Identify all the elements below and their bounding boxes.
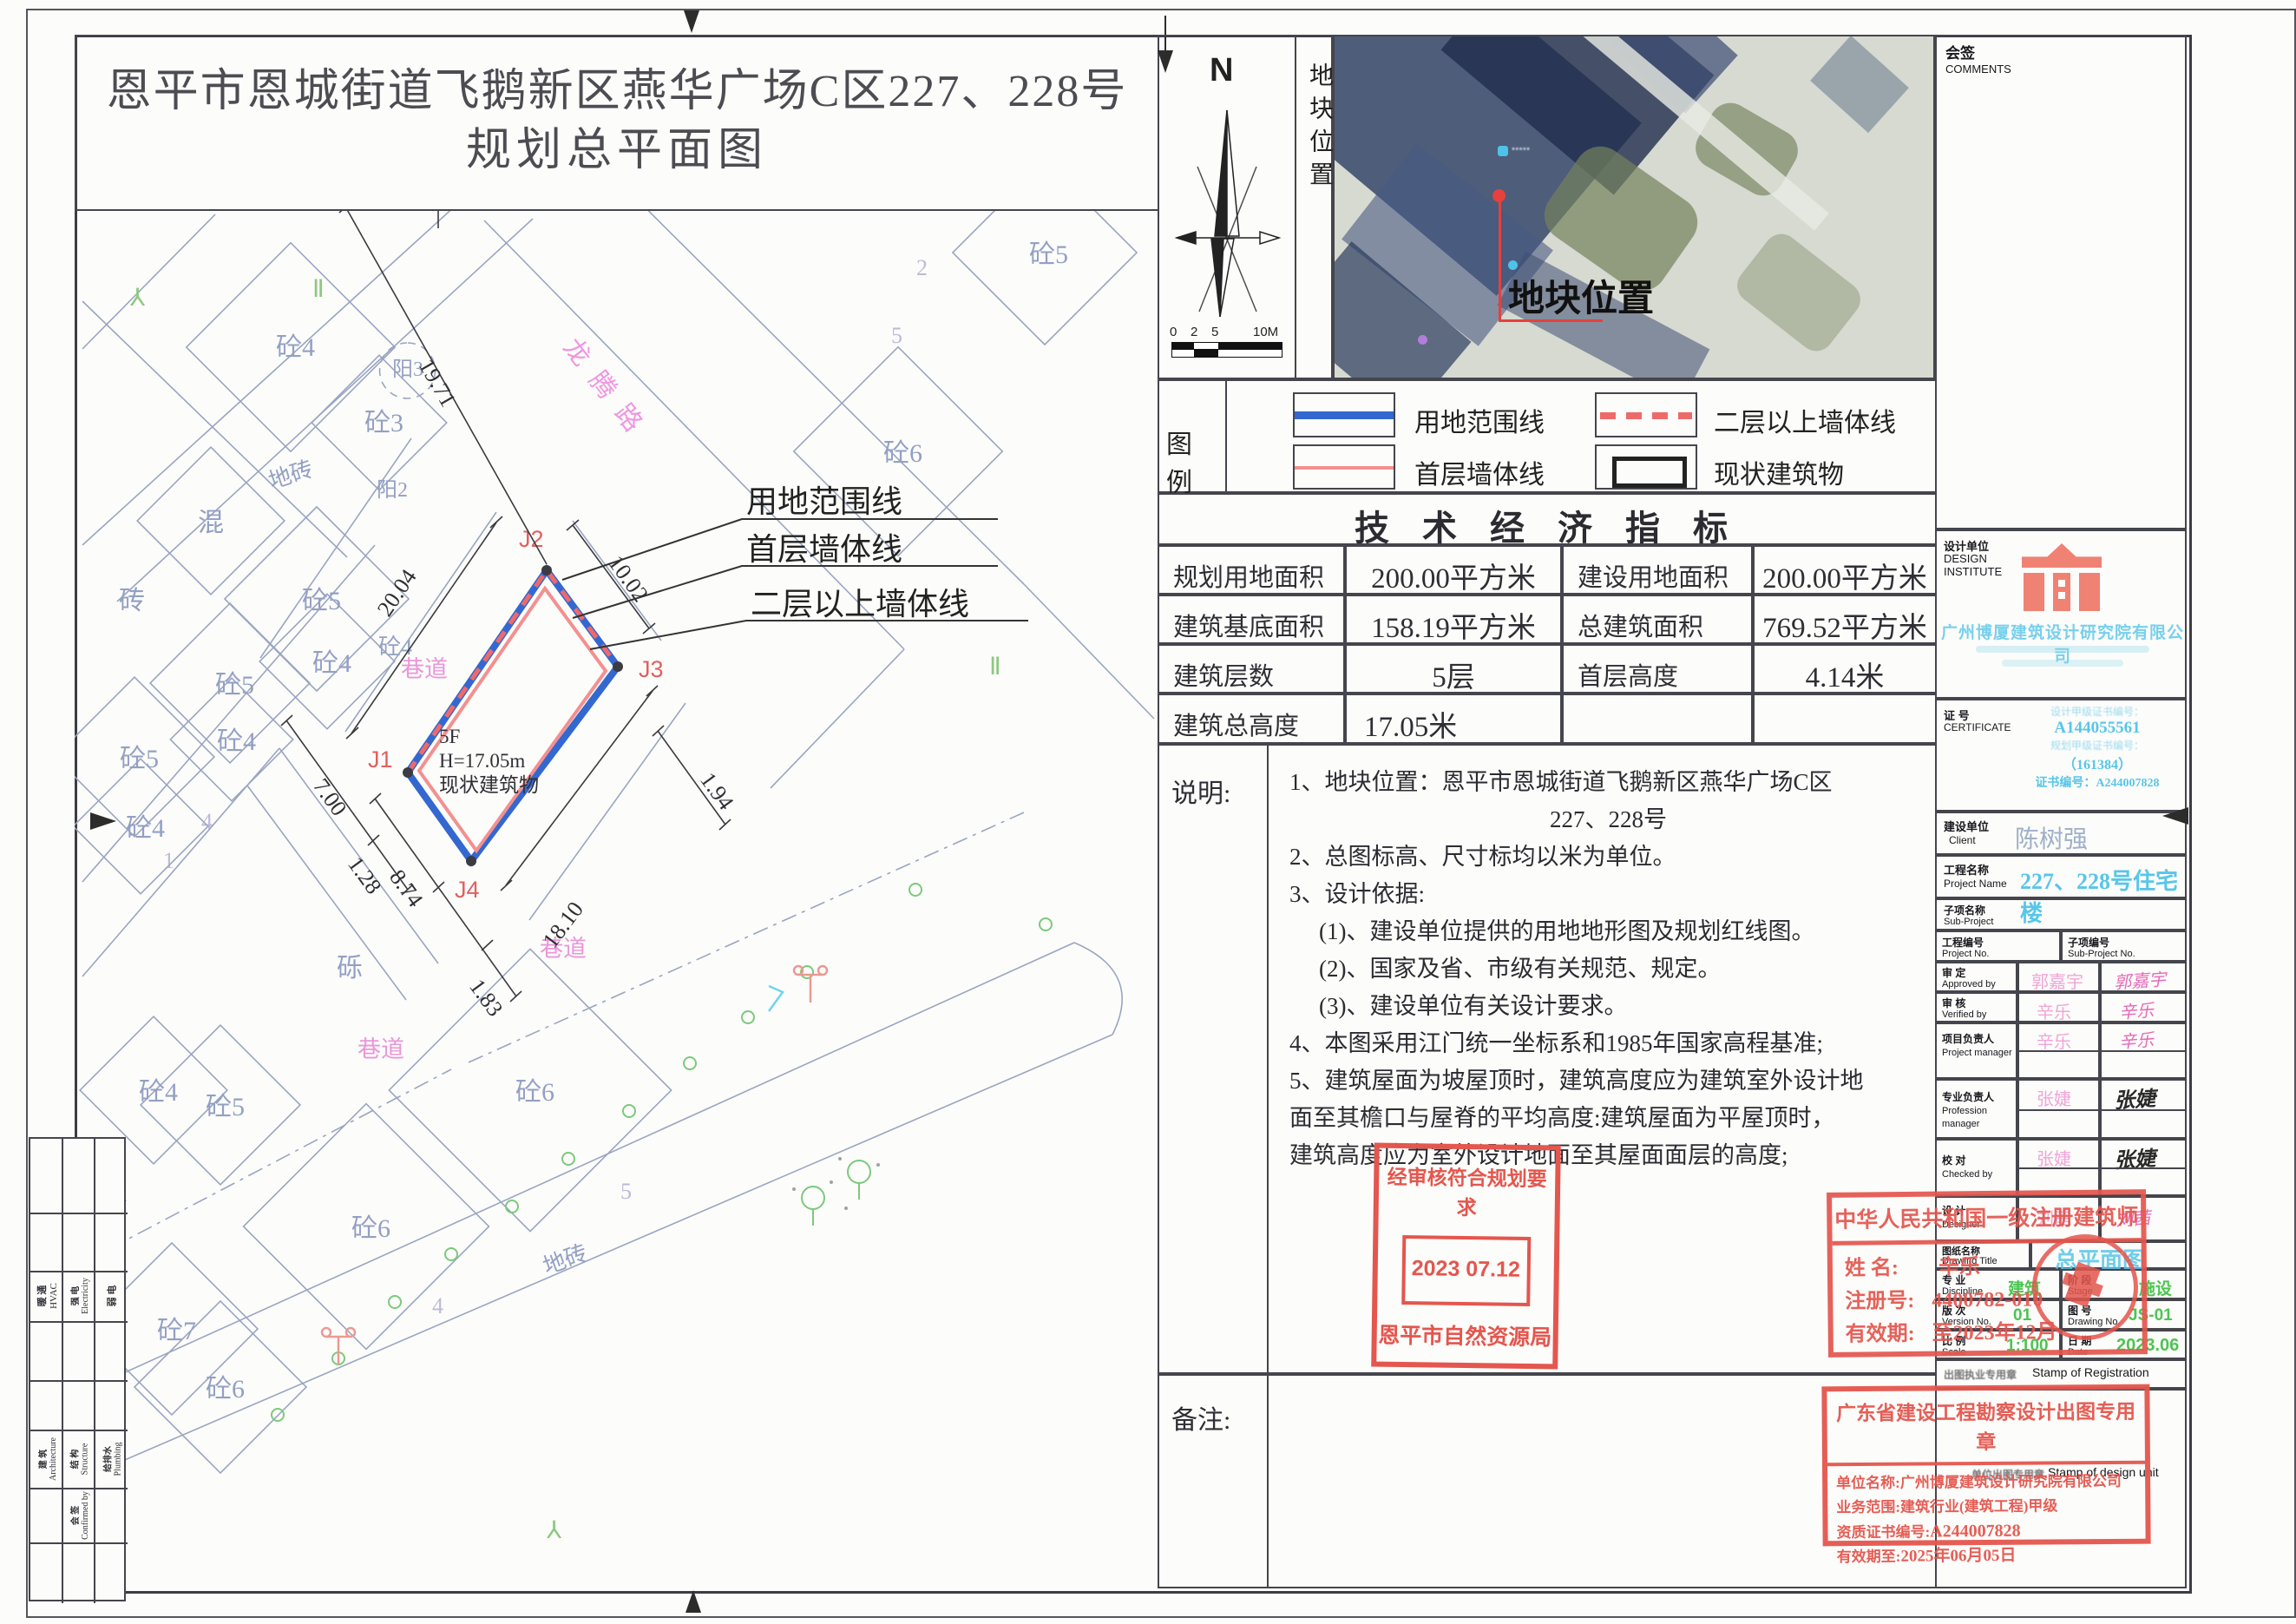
ind-cell	[1753, 694, 1937, 744]
dim-text: 1.28	[343, 851, 386, 898]
divider	[2017, 1050, 2187, 1052]
dim-text: 1.83	[464, 974, 508, 1021]
legend-swatch-upper-wall	[1595, 392, 1697, 437]
signoff-architecture: 建 筑Architecture	[30, 1430, 62, 1488]
building-status: 现状建筑物	[439, 774, 539, 796]
ind-cell: 158.19平方米	[1345, 595, 1562, 644]
architect-name-label: 姓 名:	[1845, 1257, 1899, 1280]
design-institute-cell: 设计单位 DESIGN INSTITUTE 广州博厦建筑设计研究院有限公司	[1935, 529, 2187, 699]
survey-mark: Ⅱ	[312, 276, 325, 303]
approved-by-label: 审 定 Approved by	[1935, 962, 2017, 992]
unit-stamp-value: A244007828	[1930, 1522, 2021, 1542]
certificate-en: CERTIFICATE	[1944, 721, 2011, 734]
architect-reg-label: 注册号:	[1845, 1290, 1914, 1313]
parcel-label: 砼4	[126, 814, 165, 843]
client-zh: 建设单位	[1944, 819, 1989, 835]
parcel-label: 砼7	[157, 1317, 196, 1345]
parcel-label: 砼5	[215, 671, 254, 700]
dim-text: 20.04	[372, 565, 422, 621]
institute-subline	[1976, 646, 2149, 653]
note-line: 1、地块位置：恩平市恩城街道飞鹅新区燕华广场C区	[1289, 764, 1932, 801]
institute-subline	[2002, 660, 2123, 667]
ind-cell: 首层高度	[1562, 644, 1753, 694]
ind-cell: 建筑基底面积	[1158, 595, 1345, 644]
ind-cell: 建筑总高度	[1158, 694, 1345, 744]
corner-point-label: J1	[368, 746, 393, 773]
subproject-no-en: Sub-Project No.	[2068, 948, 2135, 961]
drawing-main-title-line1: 恩平市恩城街道飞鹅新区燕华广场C区227、228号	[75, 54, 1159, 119]
scale-bar: 0 2 5 10M	[1170, 325, 1286, 365]
parcel-label: 砼4	[276, 333, 315, 362]
divider	[2017, 1167, 2187, 1169]
ind-cell: 769.52平方米	[1753, 595, 1937, 644]
signoff-weak-electricity: 弱 电	[95, 1271, 128, 1321]
ind-cell: 建筑层数	[1158, 644, 1345, 694]
certificate-cell: 证 号 CERTIFICATE 设计甲级证书编号： A144055561 规划甲…	[1935, 699, 2187, 812]
photo-vegetation-blob	[1730, 227, 1867, 358]
subproject-no-cell: 子项编号 Sub-Project No.	[2061, 930, 2187, 962]
remarks-label-cell: 备注:	[1158, 1374, 1269, 1588]
project-en: Project Name	[1944, 878, 2007, 891]
ind-cell: 17.05米	[1345, 694, 1562, 744]
architect-valid-label: 有效期:	[1846, 1323, 1915, 1346]
trees	[272, 884, 1052, 1421]
drawing-sheet: 恩平市恩城街道飞鹅新区燕华广场C区227、228号 规划总平面图	[0, 0, 2296, 1624]
location-side-cell: 地块位置	[1295, 35, 1333, 379]
signoff-confirmed-by: 会 签Confirmed by	[30, 1488, 128, 1542]
architect-name: 辛乐	[1938, 1256, 1980, 1279]
signoff-structure: 结 构Structure	[62, 1430, 95, 1488]
notes-label: 说明:	[1171, 772, 1230, 810]
ind-cell: 200.00平方米	[1345, 545, 1562, 595]
unit-stamp-label: 单位名称:	[1836, 1475, 1900, 1492]
notes-label-cell: 说明:	[1158, 744, 1269, 1374]
note-line: 5、建筑屋面为坡屋顶时，建筑高度应为建筑室外设计地	[1289, 1062, 1932, 1100]
unit-stamp-title: 广东省建设工程勘察设计出图专用章	[1827, 1395, 2145, 1467]
road-labels: 巷道 巷道 巷道 龙腾路	[358, 333, 657, 1062]
architect-valid: 至2023年12月	[1932, 1321, 2057, 1345]
unit-stamp-label: 有效期至:	[1837, 1548, 1901, 1566]
unit-stamp-value: 广州博厦建筑设计研究院有限公司	[1900, 1473, 2122, 1491]
profession-manager-label: 专业负责人 Profession manager	[1935, 1079, 2017, 1139]
project-name-cell: 工程名称 Project Name 227、228号住宅楼	[1935, 855, 2187, 898]
cert-line: 证书编号：A244007828	[2011, 773, 2184, 791]
note-line: 面至其檐口与屋脊的平均高度:建筑屋面为平屋顶时，	[1289, 1100, 1932, 1137]
dim-text: 10.02	[603, 550, 653, 606]
parcel-label: 砼6	[883, 439, 922, 468]
note-line: 227、228号	[1289, 801, 1932, 838]
legend-item-label: 首层墙体线	[1414, 453, 1545, 491]
unit-stamp-label: 资质证书编号:	[1836, 1523, 1930, 1541]
cert-line: （161384）	[2011, 753, 2184, 773]
legend-swatch-existing-building	[1595, 444, 1697, 490]
signoff-strip: 暖 通HVAC 强 电Electricity 弱 电 建 筑Architectu…	[29, 1137, 126, 1601]
indicators-title: 技 术 经 济 指 标	[1159, 500, 1935, 550]
legend-label-cell: 图 例	[1158, 379, 1227, 493]
lane-label: 巷道	[358, 1036, 404, 1062]
parcel-label: 砼5	[1029, 240, 1068, 269]
parcel-label: 地砖	[540, 1240, 591, 1279]
parcel-label: 阳2	[377, 479, 408, 502]
design-institute-en: DESIGN INSTITUTE	[1944, 552, 2004, 578]
dim-text: 8.74	[384, 865, 428, 911]
comments-cell: 会签 COMMENTS	[1935, 35, 2187, 529]
indicators-title-band: 技 术 经 济 指 标	[1158, 493, 1937, 545]
grass-symbol: ⅄	[546, 1517, 562, 1544]
remarks-label: 备注:	[1171, 1398, 1230, 1437]
parcel-label: 砼5	[206, 1093, 245, 1121]
verified-by-name: 辛乐	[2017, 992, 2100, 1022]
parcel-label: 砼4	[312, 649, 351, 678]
location-side-label: 地块位置	[1302, 62, 1336, 194]
ind-cell	[1562, 694, 1753, 744]
north-compass-icon	[1159, 84, 1295, 336]
grass-symbol: ⅄	[129, 285, 146, 312]
callout-upper-wall: 二层以上墙体线	[751, 587, 969, 621]
parcel-label: 混	[198, 509, 224, 537]
planning-stamp-date: 2023 07.12	[1412, 1256, 1521, 1282]
subproject-en: Sub-Project	[1944, 916, 1993, 929]
parcel-label: 5	[891, 323, 902, 348]
road-name-longtenglu: 龙腾路	[557, 333, 657, 450]
architect-reg-no: 4400782-010	[1932, 1288, 2043, 1312]
legend-item-label: 二层以上墙体线	[1714, 401, 1896, 439]
building-height: H=17.05m	[439, 750, 525, 772]
legend-swatch-ground-wall	[1293, 444, 1395, 490]
unit-stamp-label: 业务范围:	[1836, 1499, 1900, 1516]
note-line: 3、设计依据:	[1289, 876, 1932, 913]
callout-ground-wall: 首层墙体线	[746, 532, 902, 567]
comments-en: COMMENTS	[1945, 62, 2011, 76]
verified-by-signature: 辛乐	[2100, 992, 2187, 1022]
utility-poles	[322, 966, 827, 1364]
center-mark-left	[90, 812, 116, 830]
parcel-label: 砼5	[302, 587, 341, 615]
cert-line: A144055561	[2011, 719, 2184, 738]
callout-site-boundary: 用地范围线	[746, 484, 902, 519]
photo-pin-cyan	[1508, 260, 1518, 270]
scale-tick: 2	[1191, 325, 1197, 339]
scale-tick: 0	[1170, 325, 1177, 339]
dim-text: 1.94	[695, 767, 738, 814]
corner-point-label: J3	[639, 656, 664, 682]
signoff-plumbing: 给排水Plumbing	[95, 1430, 128, 1488]
project-no-cell: 工程编号 Project No.	[1935, 930, 2061, 962]
planning-stamp-datebox: 2023 07.12	[1401, 1235, 1531, 1306]
legend-item-label: 现状建筑物	[1714, 453, 1844, 491]
unit-stamp-value: 2025年06月05日	[1900, 1547, 2016, 1566]
planning-stamp-line1: 经审核符合规划要求	[1379, 1160, 1556, 1222]
corner-point-label: J2	[519, 526, 544, 552]
ind-cell: 4.14米	[1753, 644, 1937, 694]
parcel-label: 5	[620, 1179, 632, 1204]
drawing-main-title-line2: 规划总平面图	[75, 113, 1159, 178]
photo-building-blob	[1810, 36, 1909, 133]
planning-approval-stamp: 经审核符合规划要求 2023 07.12 恩平市自然资源局	[1371, 1143, 1561, 1370]
client-cell: 建设单位 Client 陈树强	[1935, 812, 2187, 855]
remarks-row	[1158, 1374, 1937, 1588]
legend-item-label: 用地范围线	[1414, 401, 1545, 439]
dim-text: 7.00	[308, 773, 351, 820]
ind-cell: 总建筑面积	[1562, 595, 1753, 644]
aerial-photo: 地块位置 ▪▪▪▪▪	[1333, 35, 1935, 379]
dim-text: 19.71	[414, 355, 461, 411]
parcel-label: 砾	[337, 954, 363, 983]
signoff-electricity: 强 电Electricity	[62, 1271, 95, 1321]
site-plan: 砼4 砼3 阳3 阳2 混 砖 地砖 砼5 砼6 砼5 砼4 砼4 砼5 砼4 …	[75, 211, 1159, 1588]
ind-cell: 规划用地面积	[1158, 545, 1345, 595]
ind-cell: 建设用地面积	[1562, 545, 1753, 595]
photo-pin-purple	[1418, 335, 1427, 345]
parcel-label: 砼6	[351, 1214, 390, 1243]
project-zh: 工程名称	[1944, 862, 1989, 878]
cert-line: 设计甲级证书编号：	[2011, 704, 2184, 719]
comments-zh: 会签	[1945, 45, 1975, 62]
subproject-cell: 子项名称 Sub-Project	[1935, 898, 2187, 930]
round-seal-icon	[2032, 1234, 2138, 1340]
parcel-label: 地砖	[266, 456, 316, 494]
parcel-label: 4	[201, 809, 213, 834]
note-line: (2)、国家及省、市级有关规范、规定。	[1289, 950, 1932, 988]
center-mark-right	[2162, 807, 2188, 825]
design-unit-stamp: 广东省建设工程勘察设计出图专用章 单位名称:广州博厦建筑设计研究院有限公司 业务…	[1821, 1384, 2150, 1547]
parcel-label: 砼4	[217, 727, 256, 756]
cert-line: 规划甲级证书编号：	[2011, 738, 2184, 753]
parcel-label: 砖	[119, 587, 145, 615]
scale-tick: 10M	[1253, 325, 1278, 339]
dimension-lines	[281, 211, 731, 1002]
planning-stamp-line2: 恩平市自然资源局	[1376, 1318, 1552, 1352]
compass-cell: N 0 2 5 10M	[1158, 35, 1296, 379]
center-mark-top	[1158, 50, 1173, 73]
notes-content: 1、地块位置：恩平市恩城街道飞鹅新区燕华广场C区 227、228号 2、总图标高…	[1289, 764, 1932, 1174]
verified-by-label: 审 核 Verified by	[1935, 992, 2017, 1022]
checked-by-label: 校 对 Checked by	[1935, 1139, 2017, 1196]
scale-tick: 5	[1211, 325, 1218, 339]
institute-logo-icon	[2022, 543, 2102, 613]
parcel-label: 砼4	[139, 1078, 178, 1107]
client-value: 陈树强	[2015, 820, 2088, 855]
legend-label: 图 例	[1166, 423, 1225, 499]
building-floors: 5F	[439, 726, 460, 747]
parcel-label: 砼6	[515, 1078, 554, 1107]
ind-cell: 200.00平方米	[1753, 545, 1937, 595]
lane-label: 巷道	[401, 656, 448, 682]
client-en: Client	[1949, 834, 1976, 847]
signoff-hvac: 暖 通HVAC	[30, 1271, 62, 1321]
divider	[2017, 1109, 2187, 1111]
parcel-label: 砼5	[120, 745, 159, 773]
project-manager-label: 项目负责人 Project manager	[1935, 1022, 2017, 1079]
parcel-label: 2	[916, 255, 928, 280]
photo-pin-cyan	[1498, 146, 1508, 156]
dimension-texts: 20.04 10.02 19.71 18.10 8.74 1.83 1.94 7…	[308, 355, 738, 1022]
note-line: 4、本图采用江门统一坐标系和1985年国家高程基准;	[1289, 1025, 1932, 1062]
center-mark-top-left	[684, 10, 699, 33]
approved-by-signature: 郭嘉宇	[2100, 962, 2187, 992]
note-line: 2、总图标高、尺寸标均以米为单位。	[1289, 838, 1932, 876]
note-line: (3)、建设单位有关设计要求。	[1289, 988, 1932, 1025]
corner-point-label: J4	[455, 877, 480, 903]
photo-poi-text: ▪▪▪▪▪	[1512, 142, 1530, 155]
note-line: (1)、建设单位提供的用地地形图及规划红线图。	[1289, 913, 1932, 950]
center-mark-bottom	[686, 1590, 701, 1613]
survey-point-cyan	[769, 986, 783, 1011]
approved-by-name: 郭嘉宇	[2017, 962, 2100, 992]
parcel-label: 1	[163, 848, 174, 873]
parcel-labels: 砼4 砼3 阳3 阳2 混 砖 地砖 砼5 砼6 砼5 砼4 砼4 砼5 砼4 …	[116, 240, 1068, 1544]
photo-site-marker-vline	[1499, 200, 1501, 321]
unit-stamp-value: 建筑行业(建筑工程)甲级	[1900, 1497, 2057, 1515]
project-no-en: Project No.	[1942, 948, 1989, 961]
parcel-label: 砼6	[206, 1375, 245, 1404]
parcel-label: 砼3	[364, 409, 403, 437]
legend-swatch-site-boundary	[1293, 392, 1395, 437]
ind-cell: 5层	[1345, 644, 1562, 694]
photo-location-label: 地块位置	[1508, 269, 1654, 322]
survey-mark: Ⅱ	[989, 654, 1001, 681]
parcel-label: 4	[432, 1293, 443, 1318]
